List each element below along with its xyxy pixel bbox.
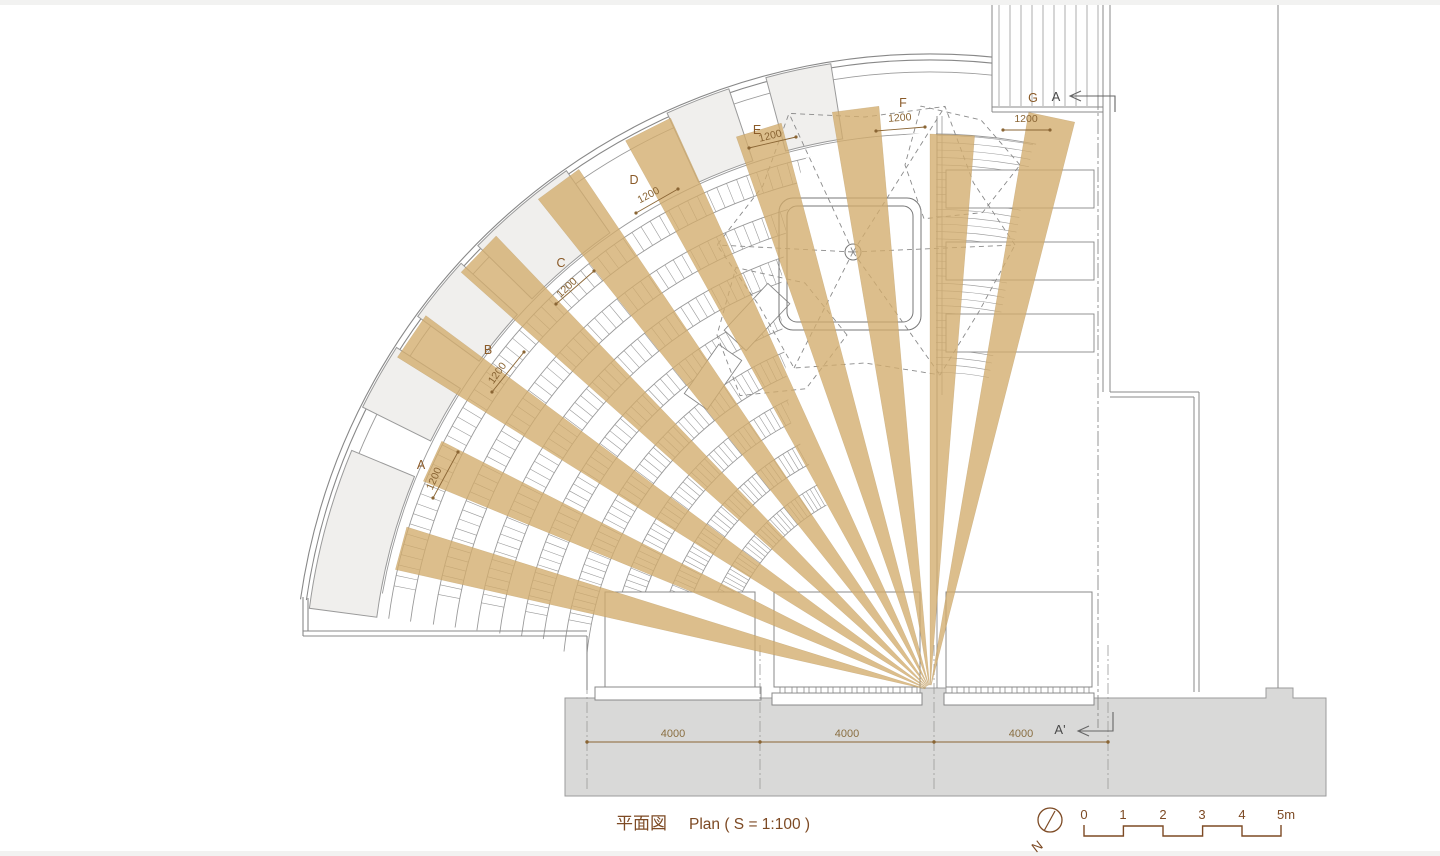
- landing-label-b: B: [484, 343, 492, 357]
- landing-label-c: C: [556, 256, 565, 270]
- pier-cap: [944, 693, 1094, 705]
- section-label-a-prime: A': [1054, 722, 1065, 737]
- landing-label-f: F: [899, 96, 907, 110]
- plan-title-jp: 平面図: [616, 814, 667, 833]
- landing-label-a: A: [417, 458, 426, 472]
- pier-cap: [595, 687, 761, 700]
- pier-cap: [772, 693, 922, 705]
- plan-title-en: Plan ( S = 1:100 ): [689, 816, 810, 833]
- scale-tick-3: 3: [1198, 807, 1205, 822]
- section-label-a: A: [1052, 89, 1061, 104]
- landing-label-g: G: [1028, 91, 1038, 105]
- scale-bar: [1084, 825, 1281, 836]
- scale-tick-4: 4: [1238, 807, 1245, 822]
- dim-4000-1: 4000: [661, 728, 685, 740]
- ground-wall-band: [565, 687, 1326, 796]
- generated-linework: [0, 0, 1440, 856]
- scale-tick-1: 1: [1119, 807, 1126, 822]
- dim-4000-3: 4000: [1009, 728, 1033, 740]
- scale-tick-0: 0: [1080, 807, 1087, 822]
- dim-4000-2: 4000: [835, 728, 859, 740]
- landing-panel: [309, 450, 414, 617]
- scale-tick-5: 5m: [1277, 807, 1295, 822]
- dim-1200-c: 1200: [554, 275, 579, 300]
- dim-1200-g: 1200: [1014, 113, 1038, 125]
- plan-canvas: A B C D E F G 1200 1200 1200 1200 1200 1…: [0, 0, 1440, 856]
- room-outline: [946, 592, 1092, 687]
- dim-1200-f: 1200: [888, 111, 912, 125]
- plan-drawing: A B C D E F G 1200 1200 1200 1200 1200 1…: [0, 0, 1440, 856]
- scale-tick-2: 2: [1159, 807, 1166, 822]
- landing-label-d: D: [629, 173, 638, 187]
